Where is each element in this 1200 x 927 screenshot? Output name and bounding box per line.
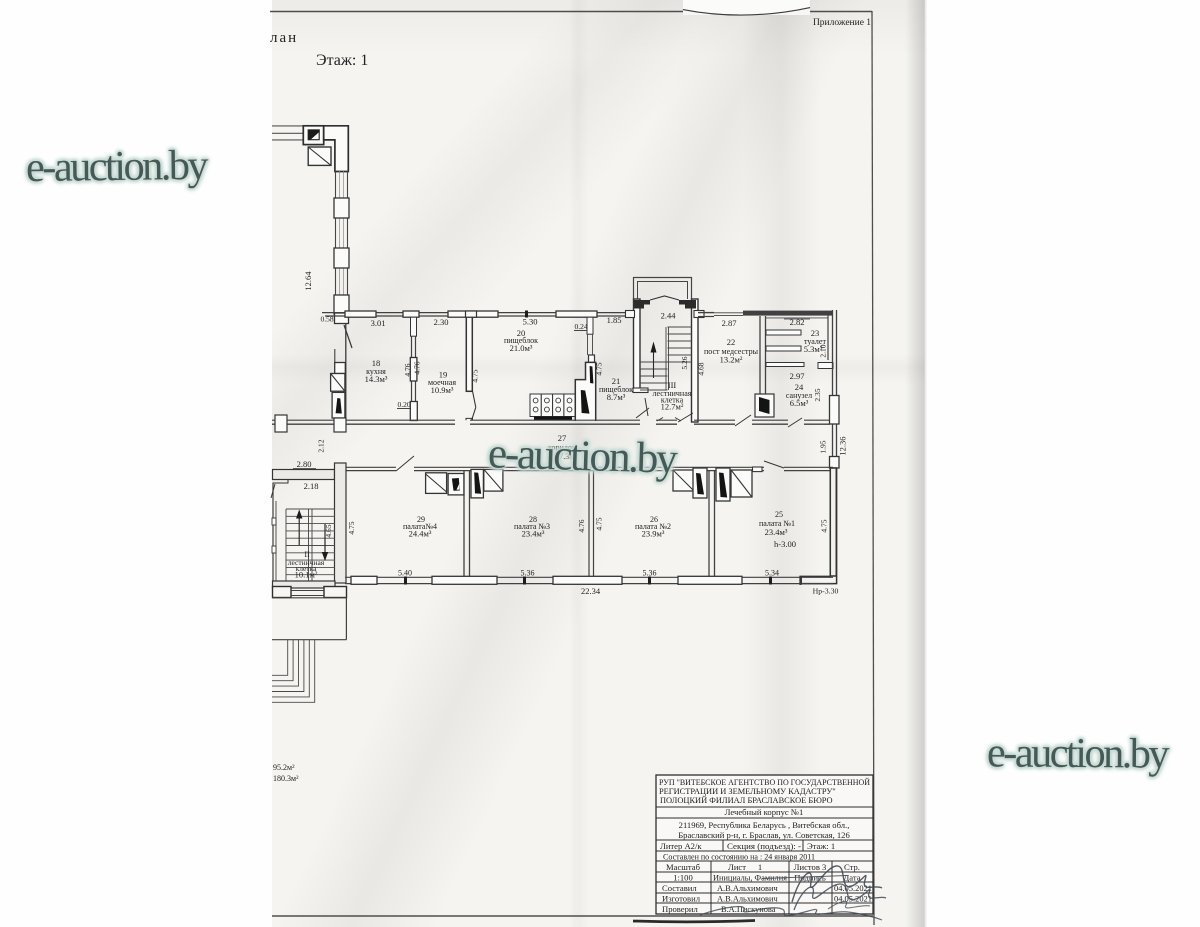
svg-text:5.36: 5.36	[643, 569, 657, 578]
svg-text:2.35: 2.35	[813, 388, 822, 401]
svg-text:22: 22	[727, 337, 736, 347]
svg-text:Стр.: Стр.	[844, 862, 860, 872]
svg-text:Составил: Составил	[662, 883, 697, 893]
svg-text:0.20: 0.20	[397, 400, 410, 409]
svg-text:4.75: 4.75	[595, 517, 604, 530]
svg-text:6.5м³: 6.5м³	[790, 398, 809, 408]
svg-text:Лист: Лист	[728, 862, 746, 872]
svg-text:Лечебный корпус №1: Лечебный корпус №1	[725, 807, 804, 817]
svg-text:РЕГИСТРАЦИИ И ЗЕМЕЛЬНОМУ КАДАС: РЕГИСТРАЦИИ И ЗЕМЕЛЬНОМУ КАДАСТРУ"	[659, 787, 836, 796]
svg-text:22.34: 22.34	[581, 586, 601, 596]
svg-text:5.30: 5.30	[523, 317, 538, 327]
svg-text:4.68: 4.68	[697, 362, 706, 375]
svg-text:12.64: 12.64	[303, 271, 313, 291]
svg-text:2.44: 2.44	[661, 311, 677, 321]
svg-text:5.36: 5.36	[521, 569, 535, 578]
svg-text:2.82: 2.82	[790, 317, 805, 327]
svg-text:1.95: 1.95	[819, 440, 828, 453]
svg-text:0.24: 0.24	[574, 322, 587, 331]
svg-text:5.40: 5.40	[398, 569, 412, 578]
svg-text:2.30: 2.30	[434, 317, 449, 327]
svg-text:2.10: 2.10	[819, 344, 828, 357]
svg-text:5.26: 5.26	[680, 356, 689, 369]
svg-text:21.0м³: 21.0м³	[510, 343, 533, 353]
svg-text:23.4м³: 23.4м³	[522, 529, 545, 539]
svg-text:1: 1	[758, 862, 762, 872]
svg-text:Этаж: 1: Этаж: 1	[807, 841, 835, 851]
svg-text:4.75: 4.75	[471, 369, 480, 382]
svg-text:Приложение 1: Приложение 1	[813, 18, 871, 28]
svg-text:Браславский р-н, г. Браслав, у: Браславский р-н, г. Браслав, ул. Советск…	[678, 830, 850, 840]
svg-text:24.4м³: 24.4м³	[409, 529, 432, 539]
svg-text:2.12: 2.12	[317, 439, 326, 452]
svg-text:Этаж: 1: Этаж: 1	[316, 52, 368, 69]
svg-text:1.85: 1.85	[607, 315, 622, 325]
svg-text:3.01: 3.01	[371, 318, 386, 328]
svg-text:13.2м²: 13.2м²	[720, 355, 743, 365]
svg-text:2.80: 2.80	[297, 459, 312, 469]
svg-text:4.76: 4.76	[413, 361, 422, 374]
svg-text:Литер А2/к: Литер А2/к	[660, 841, 702, 851]
svg-text:4.75: 4.75	[347, 521, 356, 534]
svg-text:23.9м³: 23.9м³	[642, 529, 665, 539]
svg-text:Нр-3.30: Нр-3.30	[813, 587, 839, 596]
svg-text:2.18: 2.18	[304, 481, 319, 491]
svg-text:В.А.Пискунова: В.А.Пискунова	[721, 905, 776, 914]
svg-text:лан: лан	[270, 30, 298, 46]
svg-text:4.75: 4.75	[820, 519, 829, 532]
svg-text:4.75: 4.75	[595, 362, 604, 375]
svg-text:А.В.Альхимович: А.В.Альхимович	[717, 884, 778, 893]
svg-text:Проверил: Проверил	[662, 904, 699, 914]
svg-text:4.76: 4.76	[577, 519, 586, 532]
svg-text:4.76: 4.76	[403, 363, 412, 376]
svg-text:Изготовил: Изготовил	[662, 894, 701, 904]
svg-text:5.34: 5.34	[765, 569, 779, 578]
svg-text:10.9м³: 10.9м³	[431, 385, 454, 395]
svg-text:25: 25	[775, 510, 783, 519]
svg-text:h-3.00: h-3.00	[774, 539, 796, 549]
svg-text:Масштаб: Масштаб	[666, 862, 701, 872]
svg-text:4.65: 4.65	[324, 524, 333, 537]
svg-text:8.7м³: 8.7м³	[607, 392, 626, 402]
svg-text:12.7м²: 12.7м²	[661, 402, 684, 412]
svg-text:А.В.Альхимович: А.В.Альхимович	[717, 895, 778, 904]
svg-text:23.4м³: 23.4м³	[765, 527, 788, 537]
svg-text:12.36: 12.36	[838, 436, 848, 455]
svg-text:Листов 3: Листов 3	[794, 862, 827, 872]
svg-text:2.87: 2.87	[722, 318, 737, 328]
svg-text:ПОЛОЦКИЙ ФИЛИАЛ БРАСЛАВСКОЕ БЮ: ПОЛОЦКИЙ ФИЛИАЛ БРАСЛАВСКОЕ БЮРО	[660, 796, 833, 805]
svg-text:10.1м²: 10.1м²	[295, 570, 318, 580]
svg-text:Дата: Дата	[843, 873, 860, 883]
svg-text:180.3м²: 180.3м²	[273, 774, 299, 783]
svg-text:2.97: 2.97	[790, 371, 805, 381]
svg-text:211969, Республика Беларусь ,: 211969, Республика Беларусь , Витебская …	[679, 820, 850, 830]
svg-text:Секция (подъезд): -: Секция (подъезд): -	[727, 842, 801, 851]
svg-text:95.2м²: 95.2м²	[273, 763, 295, 772]
svg-text:1:100: 1:100	[673, 873, 693, 883]
svg-text:14.3м³: 14.3м³	[365, 374, 388, 384]
svg-text:Составлен по состоянию на : 24: Составлен по состоянию на : 24 января 20…	[663, 853, 815, 862]
svg-text:РУП "ВИТЕБСКОЕ АГЕНТСТВО ПО ГО: РУП "ВИТЕБСКОЕ АГЕНТСТВО ПО ГОСУДАРСТВЕН…	[659, 778, 870, 787]
